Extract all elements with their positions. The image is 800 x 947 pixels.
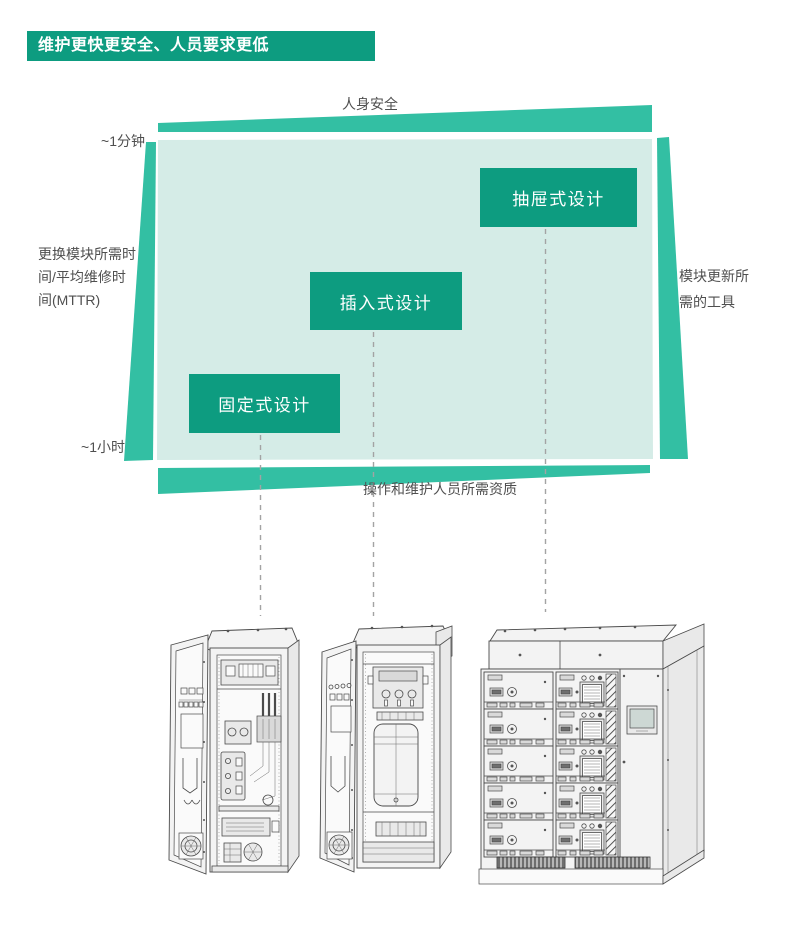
design-box-plug-in: 插入式设计 (310, 272, 462, 330)
drawer-design-cabinet-illustration (479, 624, 704, 884)
page: 维护更快更安全、人员要求更低 (0, 0, 800, 947)
left-axis-top-tick: ~1分钟 (88, 134, 145, 148)
design-box-fixed-label: 固定式设计 (218, 391, 311, 416)
right-axis-title-line2: 需的工具 (679, 289, 765, 315)
design-box-fixed: 固定式设计 (189, 374, 340, 433)
fixed-design-cabinet-illustration (169, 628, 299, 874)
right-axis-title-line1: 模块更新所 (679, 263, 765, 289)
drawer-module (484, 709, 553, 746)
left-axis-title: 更换模块所需时 间/平均维修时 间(MTTR) (38, 243, 142, 312)
top-axis-label: 人身安全 (320, 97, 420, 111)
left-axis-title-line2: 间/平均维修时 (38, 266, 142, 289)
drawer-module (556, 709, 618, 746)
bottom-axis-label: 操作和维护人员所需资质 (355, 482, 525, 496)
drawer-module (484, 783, 553, 820)
drawer-module (556, 672, 618, 709)
drawer-module (556, 746, 618, 783)
plug-in-design-cabinet-illustration (320, 625, 452, 872)
left-axis-title-line3: 间(MTTR) (38, 289, 142, 312)
design-box-plug-in-label: 插入式设计 (340, 289, 433, 314)
drawer-module (556, 820, 618, 857)
design-box-drawer: 抽屉式设计 (480, 168, 637, 227)
drawer-module (556, 783, 618, 820)
design-box-drawer-label: 抽屉式设计 (512, 185, 605, 210)
drawer-module (484, 746, 553, 783)
left-axis-title-line1: 更换模块所需时 (38, 243, 142, 266)
right-axis-title: 模块更新所 需的工具 (679, 263, 765, 315)
drawer-module (484, 820, 553, 857)
left-axis-bottom-tick: ~1小时 (70, 440, 125, 454)
drawer-module (484, 672, 553, 709)
